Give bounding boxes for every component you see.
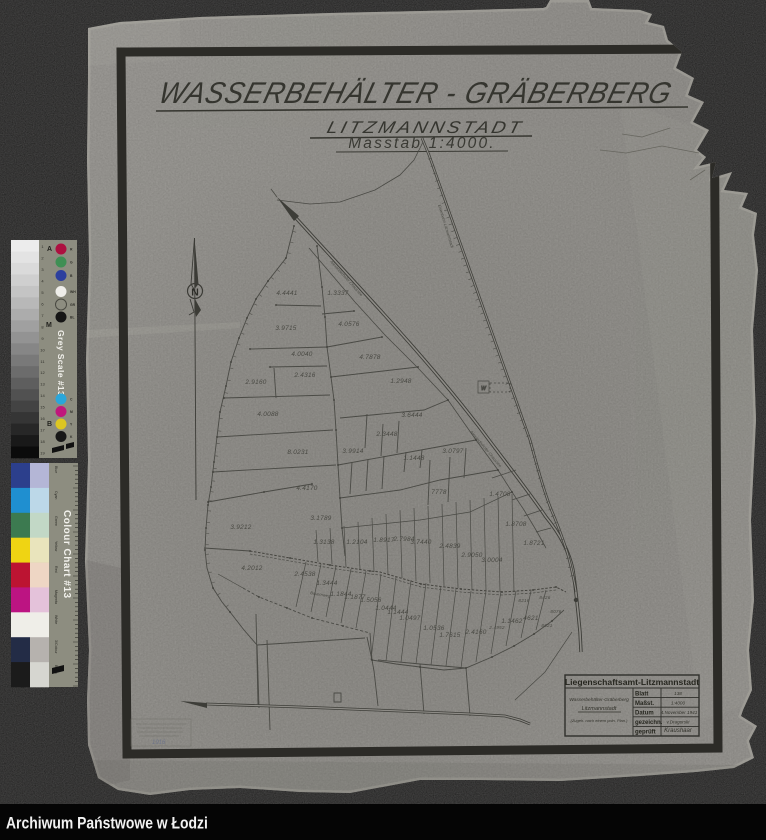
svg-text:Blue: Blue xyxy=(54,466,58,473)
svg-text:geprüft: geprüft xyxy=(635,730,656,736)
svg-text:4.2012: 4.2012 xyxy=(241,565,262,572)
svg-text:1.3138: 1.3138 xyxy=(313,539,334,546)
svg-text:(Zugeh. nach einem poln. Plan.: (Zugeh. nach einem poln. Plan.) xyxy=(571,718,629,723)
svg-text:4.0040: 4.0040 xyxy=(291,351,312,358)
svg-text:Grey Scale #13: Grey Scale #13 xyxy=(56,330,66,396)
svg-text:1.2104: 1.2104 xyxy=(346,539,367,546)
svg-text:8.0231: 8.0231 xyxy=(287,449,308,456)
svg-text:Yellow: Yellow xyxy=(54,541,58,552)
svg-text:14: 14 xyxy=(40,393,45,398)
svg-text:Archiwum Państwowe w Łodzi: Archiwum Państwowe w Łodzi xyxy=(6,815,208,833)
svg-text:1.3337: 1.3337 xyxy=(327,290,348,297)
svg-text:Cyan: Cyan xyxy=(54,491,58,499)
svg-text:Magenta: Magenta xyxy=(54,590,58,604)
svg-text:White: White xyxy=(54,615,58,624)
svg-text:v.Dragorski: v.Dragorski xyxy=(667,720,691,725)
svg-text:1.3444: 1.3444 xyxy=(316,580,337,587)
svg-text:gezeichn.: gezeichn. xyxy=(635,720,663,726)
svg-text:2.9160: 2.9160 xyxy=(244,379,266,386)
svg-text:M: M xyxy=(46,322,52,329)
svg-text:15: 15 xyxy=(40,405,45,410)
svg-text:4.November 1941: 4.November 1941 xyxy=(661,710,698,715)
svg-text:Litzmannstadt: Litzmannstadt xyxy=(582,706,617,712)
svg-text:1.1462: 1.1462 xyxy=(501,618,522,625)
svg-text:4621: 4621 xyxy=(523,615,539,622)
svg-text:Red: Red xyxy=(54,566,58,573)
svg-text:16: 16 xyxy=(40,416,45,421)
svg-text:1.7615: 1.7615 xyxy=(439,632,460,639)
svg-text:3.7440: 3.7440 xyxy=(410,539,431,546)
svg-text:Kraushaar: Kraushaar xyxy=(664,728,693,734)
svg-text:3.6444: 3.6444 xyxy=(401,412,422,419)
svg-text:7778: 7778 xyxy=(431,489,447,496)
svg-text:Colour Chart #13: Colour Chart #13 xyxy=(61,510,72,599)
svg-text:M: M xyxy=(70,410,73,414)
svg-text:1.4708: 1.4708 xyxy=(489,491,510,498)
svg-text:1.1448: 1.1448 xyxy=(403,455,424,462)
svg-text:2.9050: 2.9050 xyxy=(460,552,482,559)
svg-text:8426: 8426 xyxy=(539,595,550,600)
svg-text:19: 19 xyxy=(40,451,45,456)
svg-text:GR: GR xyxy=(70,303,76,307)
svg-text:4.7878: 4.7878 xyxy=(359,354,380,361)
svg-text:3.9715: 3.9715 xyxy=(275,325,296,332)
svg-text:1.0536: 1.0536 xyxy=(423,625,444,632)
svg-text:2.4316: 2.4316 xyxy=(293,372,315,379)
svg-text:1.8721: 1.8721 xyxy=(523,540,544,547)
svg-text:2.3448: 2.3448 xyxy=(375,431,397,438)
svg-text:8076: 8076 xyxy=(550,609,561,614)
svg-text:1.0497: 1.0497 xyxy=(399,615,420,622)
svg-text:1.8917: 1.8917 xyxy=(373,537,394,544)
svg-text:B: B xyxy=(47,421,52,428)
svg-text:Green: Green xyxy=(54,516,58,526)
svg-text:18: 18 xyxy=(40,439,45,444)
svg-text:8216: 8216 xyxy=(518,598,529,603)
svg-text:138: 138 xyxy=(674,691,682,696)
svg-text:8621: 8621 xyxy=(541,623,552,628)
svg-text:BL: BL xyxy=(70,316,75,320)
svg-text:2.4538: 2.4538 xyxy=(293,571,315,578)
svg-text:4.4441: 4.4441 xyxy=(276,290,297,297)
svg-text:3.9212: 3.9212 xyxy=(230,524,251,531)
svg-text:3.9914: 3.9914 xyxy=(342,448,363,455)
svg-text:1:4000: 1:4000 xyxy=(671,701,685,706)
svg-text:Maßst.: Maßst. xyxy=(635,701,654,707)
svg-text:LITZMANNSTADT: LITZMANNSTADT xyxy=(325,117,526,137)
svg-text:2.4952: 2.4952 xyxy=(488,625,505,630)
svg-text:Liegenschaftsamt-Litzmannstadt: Liegenschaftsamt-Litzmannstadt xyxy=(565,677,699,687)
svg-text:A: A xyxy=(47,246,52,253)
svg-text:Wasserbehälter-Gräberberg: Wasserbehälter-Gräberberg xyxy=(569,697,629,703)
svg-text:Blatt: Blatt xyxy=(635,692,648,698)
svg-text:2.4839: 2.4839 xyxy=(438,543,460,550)
svg-text:1.8708: 1.8708 xyxy=(505,521,526,528)
svg-text:1916: 1916 xyxy=(152,740,166,746)
svg-text:4.0576: 4.0576 xyxy=(338,321,359,328)
svg-text:4.4170: 4.4170 xyxy=(296,485,317,492)
svg-text:17: 17 xyxy=(40,428,45,433)
svg-text:3/Colour: 3/Colour xyxy=(54,640,58,654)
svg-text:4.0088: 4.0088 xyxy=(257,411,278,418)
svg-text:3.0004: 3.0004 xyxy=(481,557,502,564)
svg-text:Datum: Datum xyxy=(635,711,654,717)
svg-text:1.2948: 1.2948 xyxy=(390,378,411,385)
svg-text:G: G xyxy=(70,261,73,265)
svg-text:13: 13 xyxy=(40,382,45,387)
svg-text:12: 12 xyxy=(40,370,45,375)
svg-text:1.5056: 1.5056 xyxy=(360,597,381,604)
svg-text:2.4160: 2.4160 xyxy=(464,629,486,636)
svg-text:WASSERBEHÄLTER - GRÄBERBERG: WASSERBEHÄLTER - GRÄBERBERG xyxy=(155,76,676,109)
svg-text:10: 10 xyxy=(40,347,45,352)
svg-text:3.0797: 3.0797 xyxy=(442,448,463,455)
svg-text:WH: WH xyxy=(70,290,76,294)
svg-text:3.1789: 3.1789 xyxy=(310,515,331,522)
